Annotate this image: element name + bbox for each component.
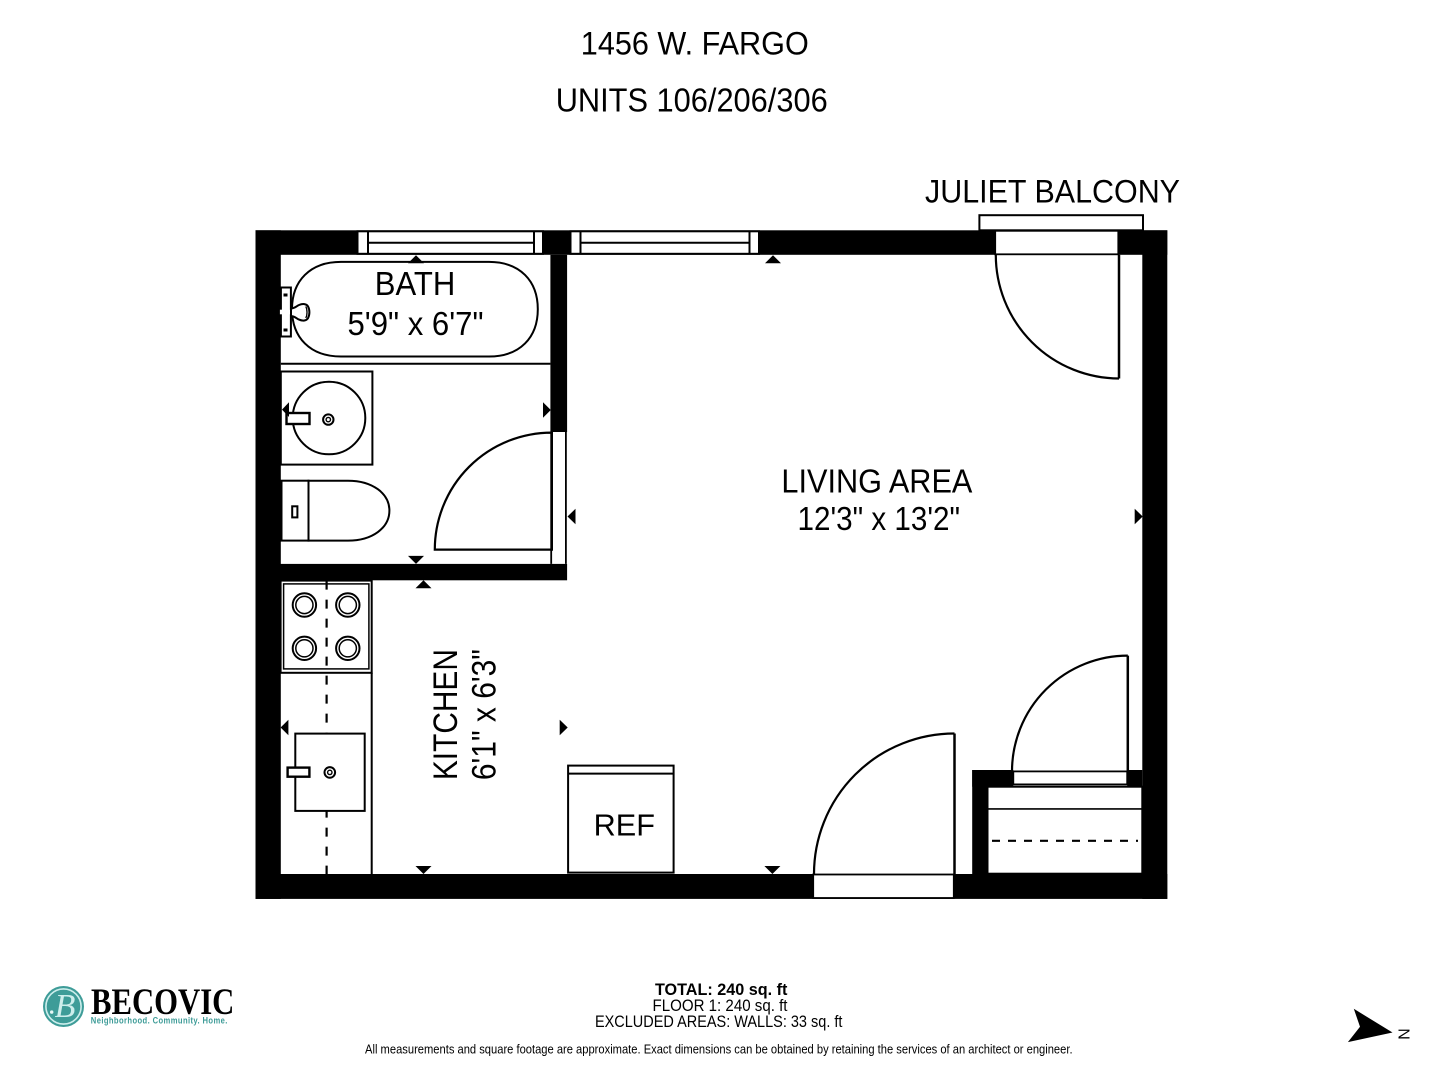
svg-text:UNITS 106/206/306: UNITS 106/206/306 [556, 82, 828, 119]
svg-text:12'3" x 13'2": 12'3" x 13'2" [798, 500, 961, 537]
svg-text:6'1" x 6'3": 6'1" x 6'3" [466, 649, 504, 780]
svg-text:LIVING AREA: LIVING AREA [781, 463, 972, 500]
svg-text:5'9" x 6'7": 5'9" x 6'7" [348, 305, 484, 342]
svg-text:REF: REF [594, 808, 655, 843]
svg-text:JULIET BALCONY: JULIET BALCONY [925, 174, 1180, 210]
svg-text:All measurements and square fo: All measurements and square footage are … [365, 1041, 1073, 1056]
svg-text:1456 W. FARGO: 1456 W. FARGO [581, 26, 809, 62]
svg-text:EXCLUDED AREAS: WALLS: 33 sq.: EXCLUDED AREAS: WALLS: 33 sq. ft [595, 1013, 843, 1031]
svg-text:BATH: BATH [375, 265, 456, 302]
svg-text:KITCHEN: KITCHEN [427, 649, 465, 780]
svg-text:B: B [55, 988, 76, 1025]
svg-text:Neighborhood. Community. Home.: Neighborhood. Community. Home. [91, 1015, 228, 1026]
svg-text:N: N [1394, 1028, 1411, 1040]
